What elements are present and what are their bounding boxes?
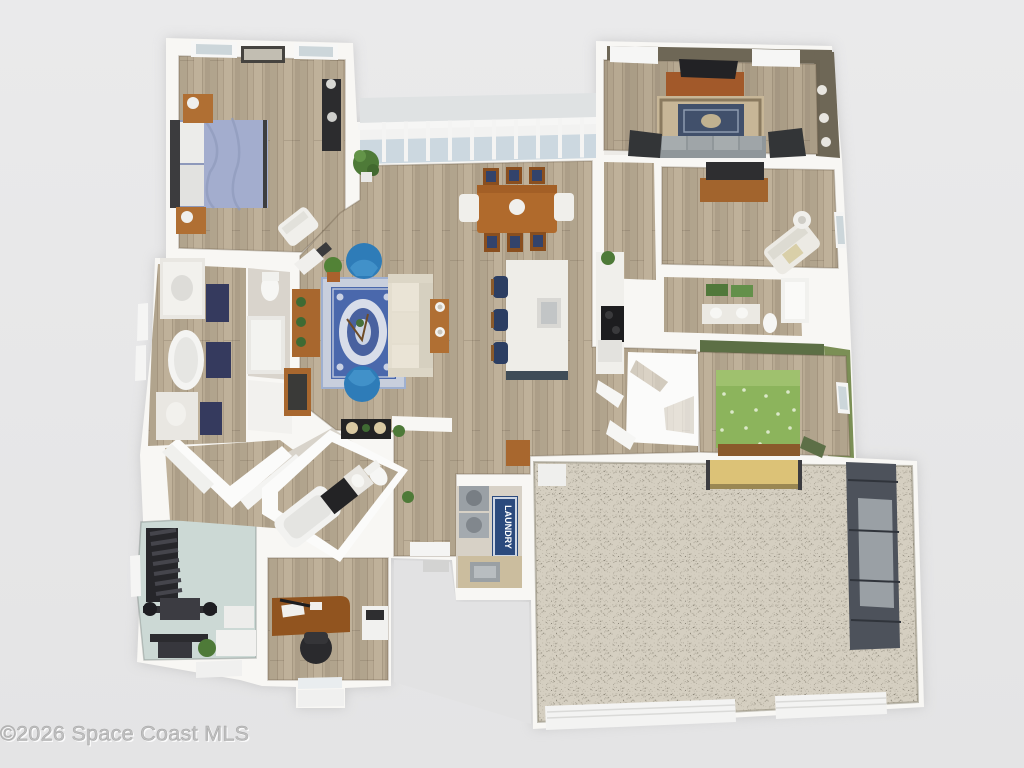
svg-text:©2026 Space Coast MLS: ©2026 Space Coast MLS bbox=[0, 722, 249, 746]
svg-text:LAUNDRY: LAUNDRY bbox=[503, 505, 513, 549]
